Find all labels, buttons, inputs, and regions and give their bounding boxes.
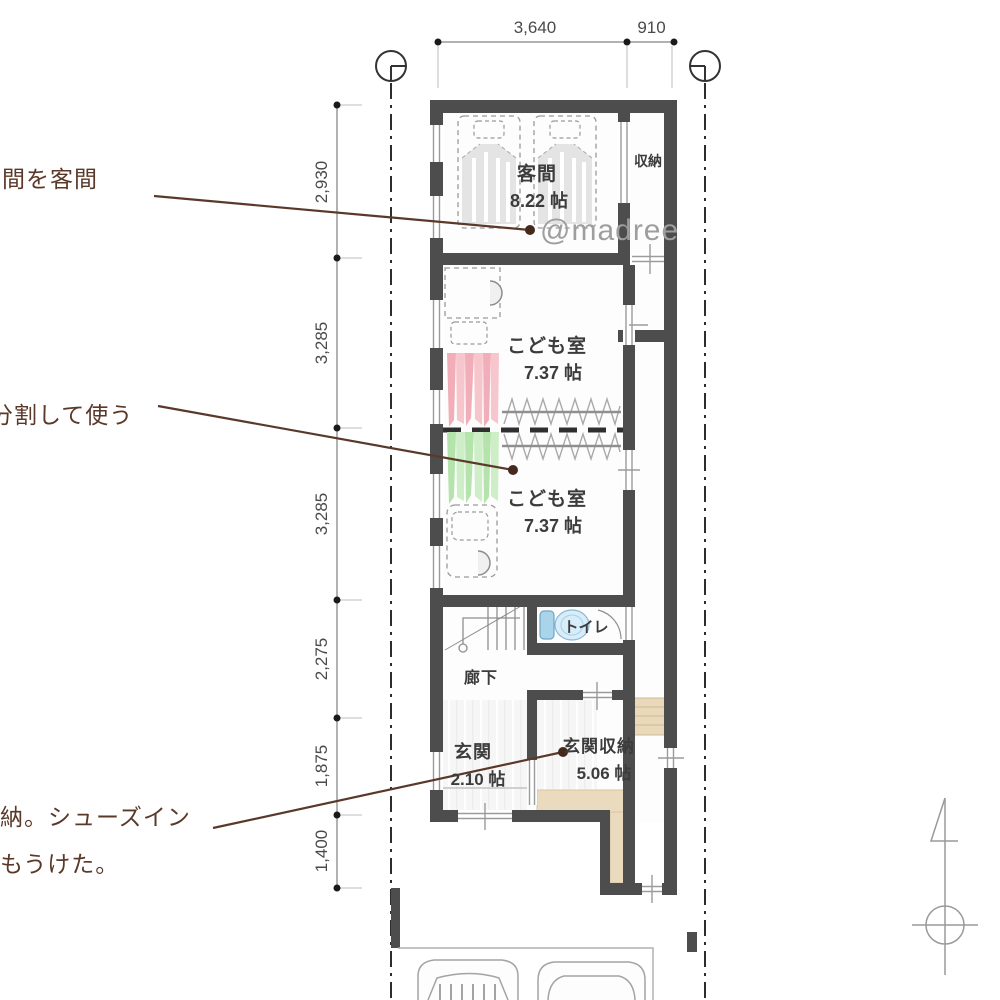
grid-bubble-icons [376, 51, 720, 81]
room-label-toilet: トイレ [558, 616, 614, 637]
room-size-guest-room: 8.22 帖 [494, 187, 584, 213]
room-size-kids-room-2: 7.37 帖 [508, 512, 598, 538]
dimension-left-3285b: 3,285 [312, 484, 332, 544]
room-size-kids-room-1: 7.37 帖 [508, 359, 598, 385]
dimension-left-1875: 1,875 [312, 736, 332, 796]
north-arrow-icon [912, 798, 978, 975]
floor-plan-page: 3,640 910 2,930 3,285 3,285 2,275 1,875 … [0, 0, 1000, 1000]
room-label-corridor: 廊下 [455, 664, 507, 688]
room-label-entrance: 玄関 [443, 738, 503, 764]
room-label-kids-room-2: こども室 [503, 484, 591, 511]
dimension-top-3640: 3,640 [490, 18, 580, 38]
left-dimension-line [334, 102, 363, 892]
car-icons [418, 960, 645, 1000]
room-label-guest-room: 客間 [496, 159, 578, 186]
annotation-guest-room: 間を客間 [2, 160, 98, 194]
watermark: @madree [540, 214, 679, 248]
dimension-left-1400: 1,400 [312, 821, 332, 881]
annotation-shoes-in-line2: もうけた。 [0, 845, 119, 879]
annotation-split-room: 分割して使う [0, 396, 133, 430]
annotation-shoes-in-line1: 納。シューズイン [0, 798, 191, 832]
floor-plan-drawing [0, 0, 1000, 1000]
dimension-top-910: 910 [624, 18, 679, 38]
top-dimension-line [435, 39, 678, 89]
room-size-entrance: 2.10 帖 [438, 765, 518, 790]
room-label-entrance-storage: 玄関収納 [556, 732, 642, 757]
room-label-closet: 収納 [622, 151, 674, 171]
room-size-entrance-storage: 5.06 帖 [560, 759, 648, 784]
dimension-left-2930: 2,930 [312, 152, 332, 212]
dimension-left-2275: 2,275 [312, 629, 332, 689]
room-label-kids-room-1: こども室 [503, 331, 591, 358]
dimension-left-3285a: 3,285 [312, 313, 332, 373]
